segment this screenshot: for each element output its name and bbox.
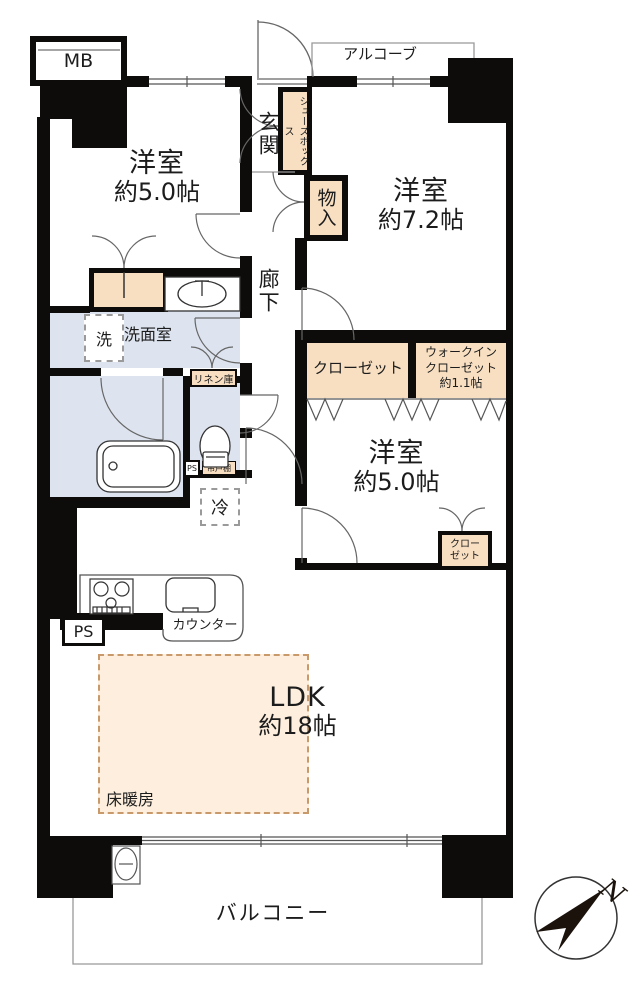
wall	[295, 558, 307, 570]
wall	[307, 563, 442, 570]
bedroom-c-label: 洋室 約5.0帖	[314, 438, 479, 497]
small-closet-line1: クロー	[450, 539, 480, 550]
wall-corner-block	[448, 58, 513, 123]
ps-kitchen-label: PS	[74, 622, 94, 641]
bedroom-a-closet	[89, 268, 168, 312]
bedroom-b-name: 洋室	[336, 176, 506, 207]
hanging-cabinet-label: 吊戸棚	[207, 463, 231, 474]
genkan-label: 玄関	[256, 96, 280, 172]
wic-line3: 約1.1帖	[414, 376, 508, 392]
shoes-box-label: シューズボックス	[280, 92, 310, 170]
pipe-space-toilet: PS	[184, 460, 200, 477]
bedroom-b-size: 約7.2帖	[336, 207, 506, 235]
pipe-space-kitchen: PS	[62, 617, 105, 646]
counter-label: カウンター	[166, 619, 244, 634]
hanging-cabinet: 吊戸棚	[202, 461, 236, 475]
ldk-name: LDK	[225, 682, 370, 713]
storage-doors	[273, 172, 304, 232]
ldk-size: 約18帖	[225, 713, 370, 741]
compass-north-label: N	[593, 873, 631, 912]
floor-heating-label: 床暖房	[106, 791, 154, 809]
small-closet-line2: ゼット	[450, 551, 480, 562]
window-balcony-sliding	[142, 834, 442, 847]
bathroom-floor	[50, 376, 183, 497]
folding-door-zigzag	[307, 399, 506, 420]
wall	[295, 238, 307, 290]
bedroom-c-size: 約5.0帖	[314, 469, 479, 497]
small-closet-box: クロー ゼット	[438, 531, 492, 570]
wall	[295, 343, 307, 506]
walk-in-closet-label: ウォークイン クローゼット 約1.1帖	[414, 345, 508, 392]
meter-box-label: MB	[64, 50, 93, 72]
refrigerator-space: 冷	[200, 488, 240, 526]
wall	[127, 76, 149, 87]
bedroom-a-name: 洋室	[72, 148, 242, 179]
toilet-floor	[190, 383, 240, 470]
shoes-box: シューズボックス	[278, 87, 312, 175]
kitchen-sink-icon	[166, 578, 215, 612]
ldk-door	[246, 428, 302, 484]
bedroom-b-label: 洋室 約7.2帖	[336, 176, 506, 235]
corridor-label: 廊下	[256, 243, 280, 338]
balcony-label: バルコニー	[198, 901, 348, 925]
wall-pipe-space	[37, 497, 77, 619]
compass: N	[535, 873, 631, 959]
wall-left-outer	[37, 117, 50, 838]
bedroom-a-closet-doors	[92, 236, 156, 268]
fridge-label: 冷	[211, 494, 229, 520]
bedroom-a-size: 約5.0帖	[72, 179, 242, 207]
floor-plan: 床暖房 MB シューズボックス 物入 クロー ゼット	[0, 0, 638, 1000]
meter-box: MB	[30, 36, 127, 86]
wic-line2: クローゼット	[414, 361, 508, 377]
wall	[295, 330, 513, 343]
wall	[490, 563, 506, 570]
window-bedroom-a	[149, 76, 225, 87]
wall	[183, 376, 190, 497]
wall	[50, 368, 101, 376]
wall	[40, 86, 127, 119]
stove-icon	[90, 579, 133, 614]
linen-cabinet: リネン庫	[190, 369, 237, 387]
bedroom-a-label: 洋室 約5.0帖	[72, 148, 242, 207]
wall	[50, 306, 90, 313]
window-genkan	[357, 76, 430, 87]
bedroom-c-door	[302, 508, 357, 563]
wall	[163, 368, 183, 376]
wall	[72, 117, 127, 148]
alcove-label: アルコーブ	[325, 46, 435, 63]
wic-line1: ウォークイン	[414, 345, 508, 361]
wall-right-outer	[506, 117, 513, 835]
wall	[240, 256, 252, 318]
wall	[163, 268, 252, 277]
linen-label: リネン庫	[194, 371, 234, 386]
wall	[307, 76, 357, 87]
wall	[225, 76, 252, 87]
closet-label: クローゼット	[309, 360, 407, 377]
ps-toilet-label: PS	[187, 464, 197, 473]
balcony-faucet-icon	[112, 846, 140, 884]
washroom-label: 洗面室	[103, 326, 193, 344]
entrance-door	[257, 20, 313, 84]
wall	[240, 428, 252, 438]
wall-corner-block	[442, 835, 513, 898]
compass-circle	[535, 877, 617, 959]
bedroom-c-name: 洋室	[314, 438, 479, 469]
wall-corner-block	[37, 838, 113, 898]
compass-needle	[536, 889, 604, 951]
small-closet-doors	[439, 508, 485, 531]
bedroom-a-door	[196, 214, 240, 258]
ldk-label: LDK 約18帖	[225, 682, 370, 741]
